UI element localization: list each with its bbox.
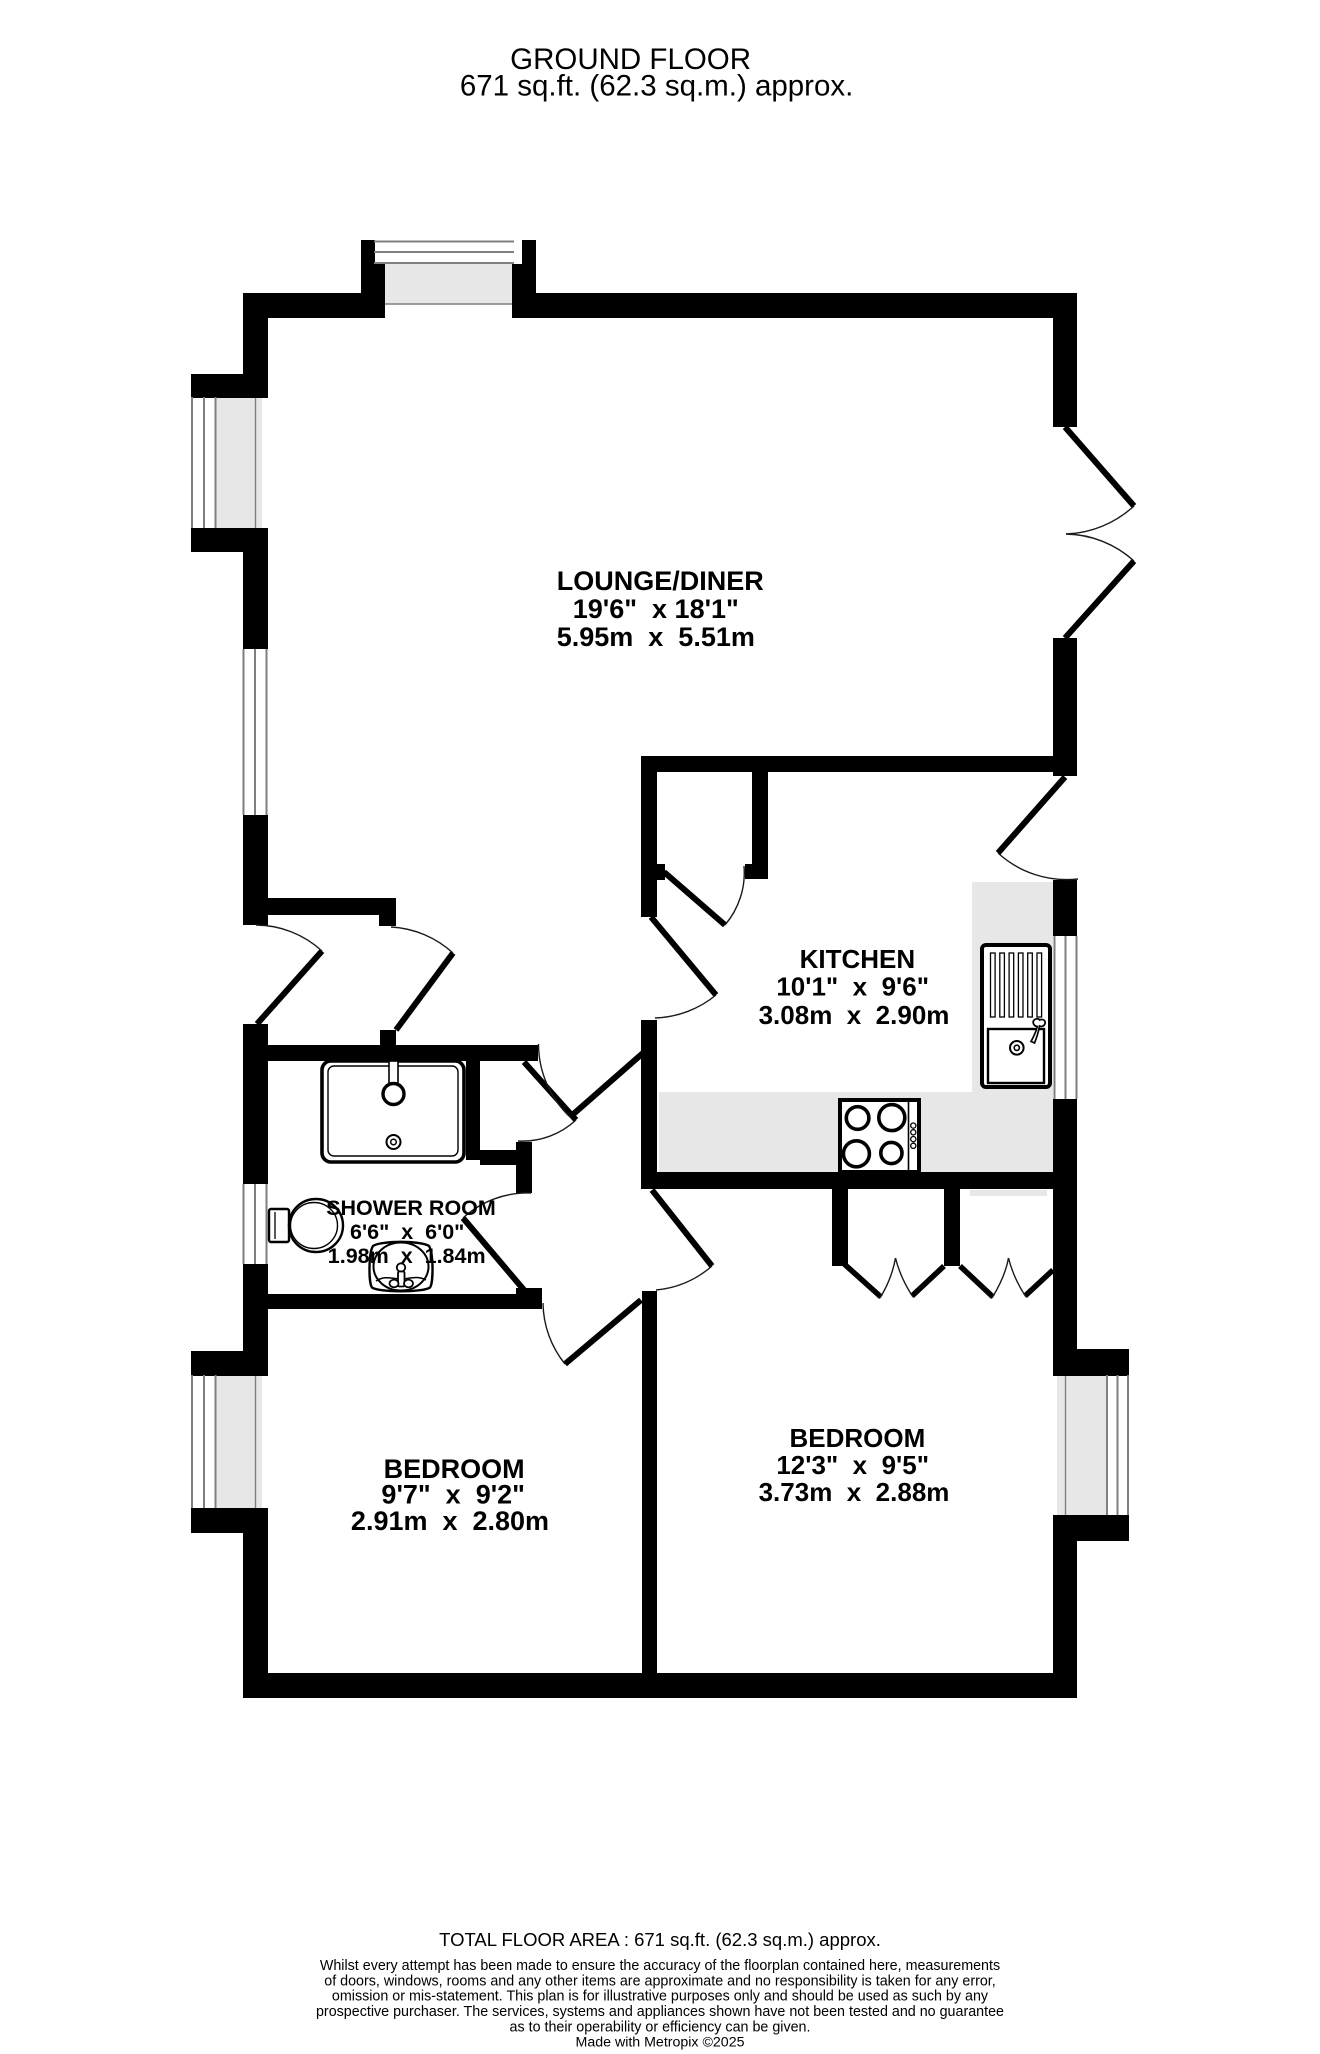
svg-text:9'7" x 9'2": 9'7" x 9'2" bbox=[381, 1480, 525, 1510]
svg-text:LOUNGE/DINER: LOUNGE/DINER bbox=[557, 566, 764, 596]
svg-text:SHOWER ROOM: SHOWER ROOM bbox=[326, 1196, 496, 1220]
svg-text:3.73m x 2.88m: 3.73m x 2.88m bbox=[759, 1477, 950, 1507]
svg-text:10'1" x 9'6": 10'1" x 9'6" bbox=[776, 972, 929, 1002]
svg-text:KITCHEN: KITCHEN bbox=[800, 944, 916, 974]
svg-text:12'3" x 9'5": 12'3" x 9'5" bbox=[776, 1450, 929, 1480]
svg-text:prospective purchaser. The ser: prospective purchaser. The services, sys… bbox=[316, 2004, 1004, 2020]
svg-text:2.91m x 2.80m: 2.91m x 2.80m bbox=[351, 1506, 549, 1536]
svg-text:3.08m x 2.90m: 3.08m x 2.90m bbox=[759, 1000, 950, 1030]
svg-text:19'6" x 18'1": 19'6" x 18'1" bbox=[573, 594, 739, 624]
svg-text:6'6" x 6'0": 6'6" x 6'0" bbox=[350, 1220, 464, 1244]
svg-text:671 sq.ft. (62.3 sq.m.) approx: 671 sq.ft. (62.3 sq.m.) approx. bbox=[460, 69, 854, 102]
svg-text:5.95m x 5.51m: 5.95m x 5.51m bbox=[557, 622, 755, 652]
svg-text:as to their operability or eff: as to their operability or efficiency ca… bbox=[510, 2019, 811, 2035]
svg-text:1.98m x 1.84m: 1.98m x 1.84m bbox=[328, 1244, 486, 1268]
svg-text:omission or mis-statement. Thi: omission or mis-statement. This plan is … bbox=[332, 1989, 989, 2005]
svg-text:of doors, windows, rooms and a: of doors, windows, rooms and any other i… bbox=[324, 1974, 996, 1990]
svg-text:Made with Metropix ©2025: Made with Metropix ©2025 bbox=[576, 2035, 745, 2051]
svg-text:BEDROOM: BEDROOM bbox=[790, 1423, 926, 1453]
svg-text:TOTAL FLOOR AREA : 671 sq.ft.: TOTAL FLOOR AREA : 671 sq.ft. (62.3 sq.m… bbox=[439, 1929, 881, 1950]
svg-text:Whilst every attempt has been: Whilst every attempt has been made to en… bbox=[320, 1958, 1000, 1974]
